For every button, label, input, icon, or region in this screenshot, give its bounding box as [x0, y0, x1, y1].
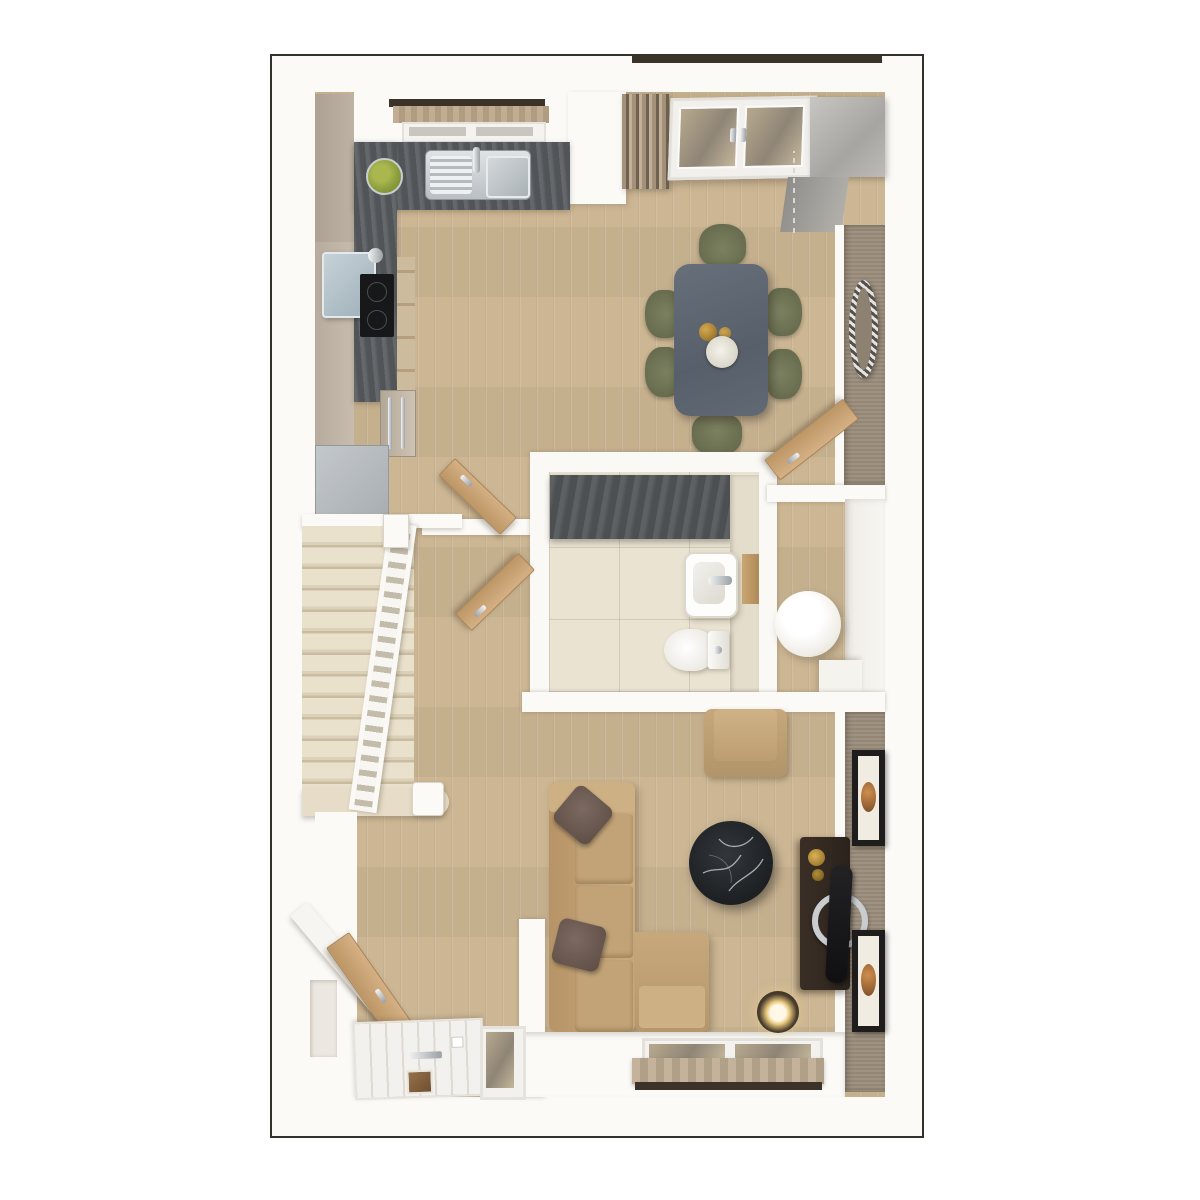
- chaise-seat-cushion: [639, 986, 705, 1028]
- dining-door-lintel: [632, 56, 882, 63]
- kitchen-sink: [425, 150, 531, 200]
- wall-art-frame-2: [852, 930, 885, 1032]
- toilet-cistern: [708, 631, 729, 669]
- oval-mirror: [849, 280, 878, 378]
- dining-table: [674, 264, 768, 416]
- art-orange-circle-1: [861, 782, 876, 812]
- art-mat-1: [858, 756, 879, 840]
- window-bottom-rail: [635, 1082, 822, 1090]
- oven-handle-1: [388, 397, 392, 449]
- newel-post-top: [383, 514, 409, 548]
- door-handle: [473, 604, 487, 617]
- gray-cabinet-side-face: [780, 177, 849, 232]
- fruit-bowl: [366, 158, 403, 195]
- tall-gray-cabinet: [810, 97, 885, 177]
- flush-button: [714, 646, 722, 654]
- globe-floor-lamp: [757, 991, 799, 1033]
- door-latch: [451, 1036, 463, 1047]
- flower-centerpiece: [706, 336, 738, 368]
- bathroom-feature-wall: [550, 475, 732, 539]
- letterbox: [408, 1051, 442, 1059]
- coffee-table: [689, 821, 773, 905]
- sink-faucet: [473, 147, 480, 173]
- kitchen-window-pane-left: [409, 127, 466, 136]
- dining-chair-top: [699, 224, 746, 266]
- oven-handle-2: [401, 397, 405, 449]
- wall-between-kitchen-dining: [568, 92, 626, 204]
- sink-basin: [486, 156, 530, 198]
- hob-ring-2: [367, 310, 387, 330]
- bathroom-shelf: [742, 554, 759, 604]
- fridge-freezer: [315, 445, 389, 522]
- white-pouf: [775, 591, 841, 657]
- door-handle: [786, 452, 800, 465]
- induction-hob: [360, 274, 394, 337]
- bathroom-tap: [708, 576, 732, 585]
- armchair-seat: [714, 709, 777, 761]
- door-glazing-square: [406, 1070, 433, 1095]
- floor-plan-canvas: [0, 0, 1200, 1200]
- brass-desk-lamp: [808, 849, 825, 866]
- art-orange-circle-2: [861, 964, 876, 996]
- kitchen-window-blind: [393, 106, 549, 123]
- armchair: [704, 709, 787, 777]
- art-mat-2: [858, 936, 879, 1026]
- kitchen-drawer-fronts: [397, 257, 415, 402]
- french-door-pane-right: [743, 105, 805, 168]
- french-door-handle-right: [740, 128, 746, 142]
- dining-curtain: [622, 94, 669, 189]
- dining-chair-right-1: [766, 288, 802, 336]
- dining-chair-right-2: [766, 349, 802, 399]
- newel-post-bottom: [412, 782, 444, 816]
- floor-plan-frame: [270, 54, 924, 1138]
- french-door-handle-left: [730, 128, 736, 142]
- pendant-light-chain: [793, 151, 795, 233]
- entrance-sidelight: [480, 1026, 526, 1100]
- wall-art-frame-1: [852, 750, 885, 846]
- toilet-bowl: [664, 629, 714, 671]
- dining-chair-bottom: [692, 414, 742, 456]
- marble-veins: [689, 821, 773, 905]
- kitchen-tall-cabinet: [315, 94, 354, 242]
- entrance-wall-niche: [310, 980, 337, 1057]
- sink-drainer: [430, 156, 472, 194]
- exterior-wall-right: [885, 56, 922, 1136]
- sofa-seat-3: [575, 960, 633, 1032]
- living-room-top-wall: [522, 692, 885, 712]
- kitchen-window-pane-right: [476, 127, 533, 136]
- front-door-top-view: [353, 1018, 486, 1100]
- bathroom-sink: [684, 552, 738, 618]
- kettle: [368, 248, 383, 263]
- sidelight-glass: [486, 1032, 514, 1088]
- door-handle: [374, 988, 387, 1003]
- door-handle: [460, 474, 474, 487]
- sofa-chaise: [635, 932, 709, 1032]
- exterior-wall-bottom: [272, 1097, 922, 1136]
- kitchen-window-frame: [402, 122, 546, 143]
- brass-dish: [812, 869, 824, 881]
- window-valance: [632, 1058, 824, 1084]
- hob-ring-1: [367, 282, 387, 302]
- storage-step: [819, 660, 862, 694]
- mirror-glass: [855, 288, 872, 370]
